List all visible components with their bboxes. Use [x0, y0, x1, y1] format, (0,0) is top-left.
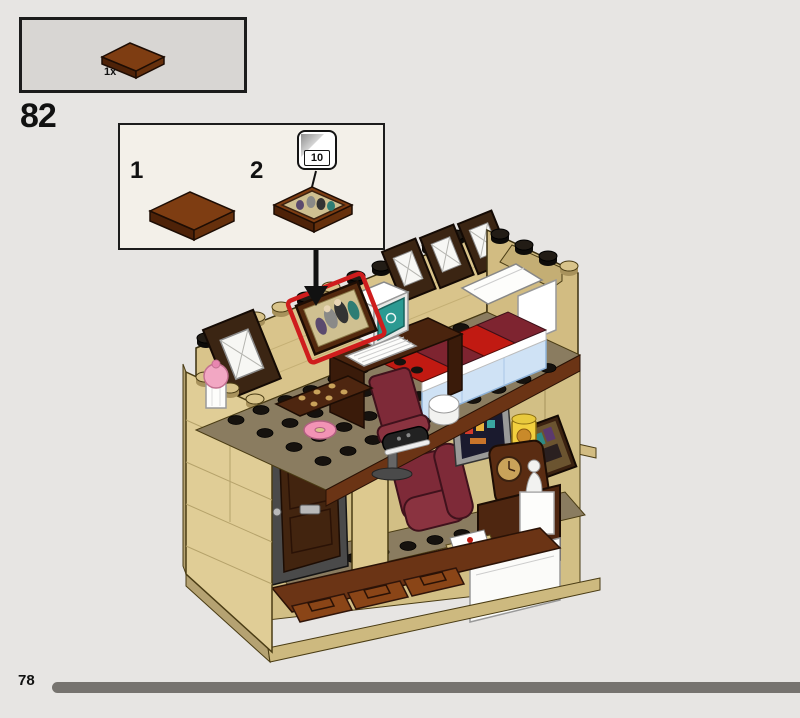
- page-number: 78: [18, 672, 35, 689]
- substep-parts-art: [120, 125, 383, 248]
- instruction-page: { "page": { "background": "#e7e5e3", "ty…: [0, 0, 800, 718]
- mail-slot: [300, 505, 320, 514]
- model-illustration: [0, 0, 800, 718]
- step-number: 82: [20, 97, 56, 136]
- cupcake: [204, 360, 228, 408]
- donut: [304, 421, 336, 439]
- sticker-sheet-badge: 10: [297, 130, 337, 170]
- substep2-tile-with-sticker: [274, 187, 352, 232]
- substep-1-number: 1: [130, 157, 143, 185]
- part-quantity-label: 1x: [104, 66, 116, 78]
- door-handle: [273, 508, 281, 516]
- substep1-tile: [150, 192, 234, 240]
- progress-bar: [52, 682, 800, 693]
- nightstand: [429, 395, 459, 425]
- substep-2-number: 2: [250, 157, 263, 185]
- parts-callout-box: 1x: [19, 17, 247, 93]
- parts-callout-part: [22, 20, 244, 90]
- sticker-number: 10: [304, 150, 330, 166]
- substep-inset-box: 1 2 10: [118, 123, 385, 250]
